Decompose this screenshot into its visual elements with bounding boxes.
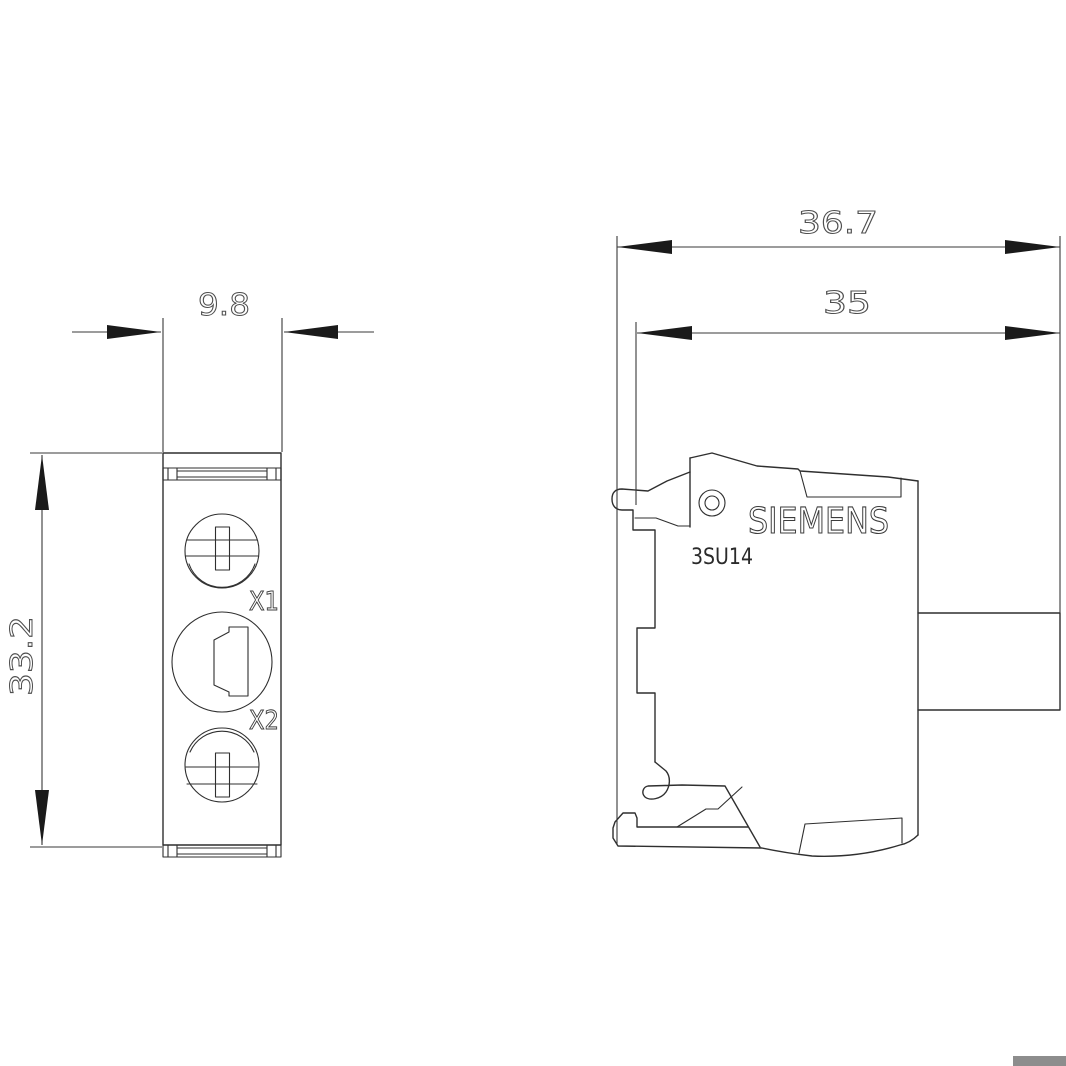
- front-screw-terminal-top: [185, 514, 259, 588]
- side-top-face: [690, 453, 918, 481]
- arrowhead: [617, 240, 672, 254]
- screw-slot: [216, 753, 230, 797]
- front-bottom-strip: [163, 845, 281, 857]
- dimension-value-front-height: 33.2: [5, 616, 40, 696]
- dimension-value-side-overall: 36.7: [798, 206, 878, 241]
- arrowhead: [284, 325, 338, 339]
- model-number-text: 3SU14: [691, 545, 753, 570]
- front-led-window: [172, 612, 272, 712]
- terminal-label-x2: X2: [249, 706, 279, 736]
- front-top-strip: [163, 468, 281, 480]
- front-screw-terminal-bottom: [185, 728, 259, 802]
- arrowhead: [35, 455, 49, 510]
- arrowhead: [107, 325, 161, 339]
- arrowhead: [35, 790, 49, 845]
- arrowhead: [637, 326, 692, 340]
- screw-slot: [216, 527, 230, 570]
- led-lamp-symbol: [214, 627, 248, 696]
- dimension-value-front-width: 9.8: [198, 288, 250, 323]
- terminal-label-x1: X1: [249, 587, 279, 617]
- front-body-outline: [163, 453, 281, 845]
- brand-logo-text: SIEMENS: [748, 501, 889, 542]
- dimension-front-height: 33.2: [5, 453, 162, 847]
- front-view: X1 X2: [163, 453, 281, 857]
- side-fixing-hole-outer: [699, 490, 725, 516]
- dimension-front-width: 9.8: [72, 288, 374, 452]
- dimension-side-body: 35: [636, 286, 1060, 505]
- side-latch-arm: [643, 762, 760, 847]
- dimension-value-side-body: 35: [823, 286, 871, 321]
- side-connector-block: [918, 613, 1060, 710]
- technical-drawing-page: X1 X2 SIEMENS 3SU14: [0, 0, 1066, 1066]
- side-foot-tab: [799, 818, 902, 853]
- side-view: SIEMENS 3SU14: [612, 453, 1060, 856]
- side-snap-hook: [612, 472, 690, 762]
- corner-watermark-bar: [1013, 1056, 1066, 1066]
- side-latch-spring-detail: [677, 787, 742, 827]
- arrowhead: [1005, 326, 1060, 340]
- side-fixing-hole-inner: [705, 496, 719, 510]
- side-hook-detail: [635, 518, 690, 526]
- arrowhead: [1005, 240, 1060, 254]
- dimensional-drawing: X1 X2 SIEMENS 3SU14: [0, 0, 1066, 1066]
